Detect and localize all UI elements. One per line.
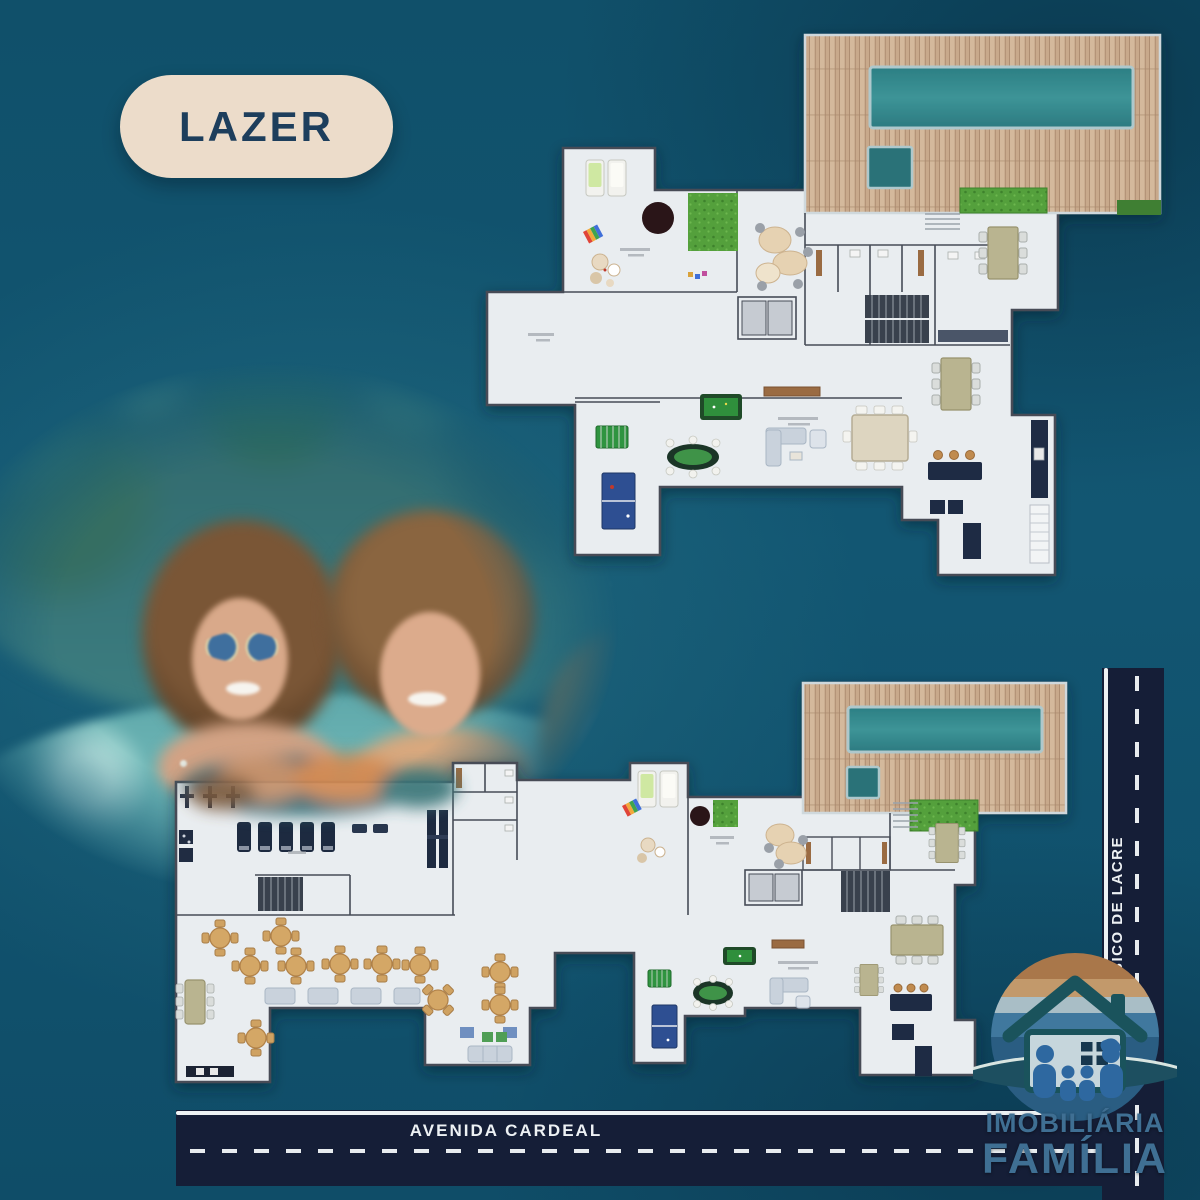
lazer-badge-label: LAZER — [179, 103, 334, 151]
dining-table — [891, 916, 943, 964]
kitchen-counter — [186, 1066, 234, 1077]
ground-floor-plan — [176, 683, 1066, 1082]
poker-table — [666, 436, 720, 478]
shade-tree — [690, 806, 710, 826]
kitchen-counter — [1031, 420, 1048, 498]
logo-line2: FAMÍLIA — [955, 1139, 1195, 1180]
stairs — [865, 295, 929, 343]
kids-pool — [868, 147, 912, 188]
grass-patch — [688, 193, 738, 251]
swimming-pool — [870, 67, 1133, 128]
sideboard — [772, 940, 804, 948]
long-table — [176, 980, 214, 1024]
photo-overlap-swimmers — [182, 754, 458, 816]
ping-pong-table — [602, 473, 635, 529]
wood-deck — [805, 35, 1160, 213]
foosball-table — [648, 970, 671, 987]
agency-logo: IMOBILIÁRIA FAMÍLIA — [955, 952, 1195, 1180]
sideboard — [764, 387, 820, 396]
pool-table — [700, 394, 742, 420]
shelving — [1030, 505, 1049, 563]
dining-table — [979, 227, 1027, 279]
rooftop-leisure-plan — [487, 35, 1161, 575]
wood-deck — [803, 683, 1066, 813]
foosball-table — [596, 426, 628, 448]
poster-canvas: AVENIDA CARDEAL RUA BICO DE LACRE LAZER — [0, 0, 1200, 1200]
swimming-pool — [848, 707, 1042, 752]
kids-pool — [847, 767, 879, 798]
lazer-badge: LAZER — [120, 75, 393, 178]
deck-dining-table — [929, 824, 965, 863]
small-table — [855, 964, 884, 995]
ping-pong-table — [652, 1005, 677, 1048]
grass-patch — [713, 800, 738, 827]
grass-patch — [960, 188, 1047, 213]
avenue-label: AVENIDA CARDEAL — [366, 1121, 646, 1141]
elevators — [745, 870, 802, 905]
poker-table — [693, 976, 733, 1011]
large-dining-table — [843, 406, 917, 470]
house-family-sunset-wave-icon — [973, 952, 1177, 1122]
shade-tree — [642, 202, 674, 234]
hedge — [1117, 200, 1161, 215]
dining-table — [932, 358, 980, 410]
